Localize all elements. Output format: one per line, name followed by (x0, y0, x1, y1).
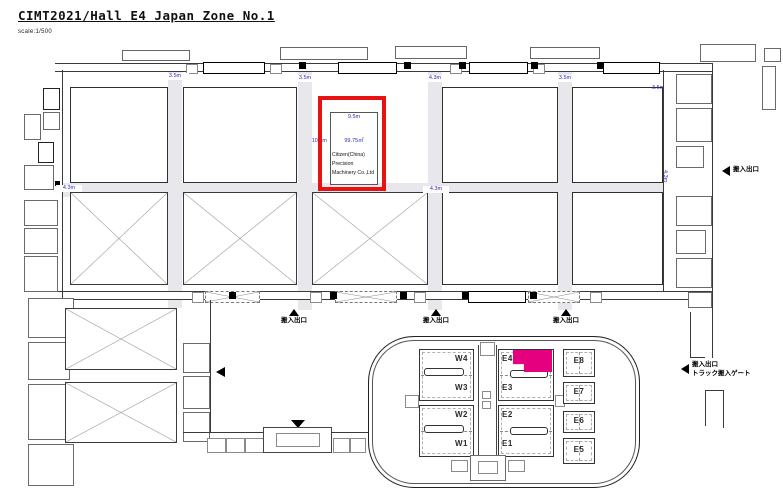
pillar (597, 62, 604, 69)
boundary-wall (705, 390, 706, 426)
facility-room (43, 88, 60, 110)
door-frame (270, 64, 282, 74)
facility-room (24, 200, 58, 226)
counter-cell (245, 438, 264, 453)
booth (442, 192, 558, 285)
hall-label-e2: E2 (502, 410, 513, 419)
highlight-box (318, 96, 386, 191)
pillar (404, 62, 411, 69)
gate-door (338, 62, 397, 74)
entrance-side-structure (508, 460, 525, 472)
facility-room (676, 258, 712, 288)
wall-right-outer (712, 63, 713, 358)
boundary-wall (690, 357, 705, 358)
gate-door (203, 62, 265, 74)
truck-gate-label-line1: 搬入出口 (692, 361, 718, 369)
floor-plan-page: CIMT2021/Hall E4 Japan Zone No.1 scale:1… (0, 0, 783, 495)
boundary-wall (705, 390, 723, 391)
canopy (122, 50, 190, 61)
facility-room (43, 112, 60, 130)
page-title: CIMT2021/Hall E4 Japan Zone No.1 (18, 8, 275, 23)
corridor-structure (482, 391, 491, 399)
boundary-wall (723, 390, 724, 428)
facility-room (183, 412, 210, 442)
pillar (330, 292, 337, 299)
facility-room (676, 196, 712, 226)
gate-label: 搬入出口 (423, 317, 449, 325)
arrow-left-icon (722, 166, 730, 176)
arrow-up-icon (561, 309, 571, 316)
facility-room (762, 66, 776, 110)
facility-room (676, 108, 712, 142)
pillar (530, 292, 537, 299)
gate-door (603, 62, 660, 74)
counter-cell (333, 438, 350, 453)
canopy (395, 46, 467, 59)
dimension-label: 3.5m (652, 85, 664, 92)
door-frame (310, 292, 322, 303)
dimension-label: 4.3m (661, 170, 668, 182)
gate-label: 搬入出口 (733, 166, 759, 174)
service-core (424, 425, 464, 433)
wall (210, 300, 211, 433)
pillar (462, 292, 469, 299)
corridor-wall (496, 345, 497, 463)
corridor-wall (478, 345, 479, 463)
facility-room (28, 444, 74, 486)
service-core (510, 427, 548, 435)
site-overview-map: W4 W3 W2 W1 E4 E3 E2 E1 E8 E7 E6 E5 (368, 336, 640, 488)
west-entrance-stub (405, 395, 419, 408)
hall-label-w3: W3 (455, 383, 468, 392)
hatch-door (335, 291, 397, 303)
arrow-left-icon (216, 367, 225, 377)
gate-label: 搬入出口 (281, 317, 307, 325)
dimension-label: 4.3m (56, 185, 82, 192)
crossed-area (65, 308, 177, 370)
dimension-label: 3.5m (551, 75, 579, 82)
door-frame (192, 292, 204, 303)
hall-label-w2: W2 (455, 410, 468, 419)
dimension-label: 4.3m (423, 186, 449, 193)
hall-label-e3: E3 (502, 383, 513, 392)
hall-label-w4: W4 (455, 354, 468, 363)
hall-label-e1: E1 (502, 439, 513, 448)
crossed-booth (70, 192, 168, 285)
crossed-area (65, 382, 177, 443)
counter-cell (207, 438, 226, 453)
hall-label-e4: E4 (502, 354, 513, 363)
entrance-inner (276, 433, 320, 447)
hall-label-e5: E5 (563, 445, 595, 454)
truck-gate-label-line2: トラック搬入ゲート (692, 370, 751, 378)
arrow-up-icon (289, 309, 299, 316)
pillar (531, 62, 538, 69)
canopy (280, 47, 368, 60)
hall-label-w1: W1 (455, 439, 468, 448)
facility-room (688, 292, 712, 308)
facility-room (676, 146, 704, 168)
facility-room (183, 376, 210, 409)
gate-label: 搬入出口 (553, 317, 579, 325)
dimension-label: 4.3m (421, 75, 449, 82)
service-core (424, 368, 464, 376)
counter-cell (350, 438, 366, 453)
booth (442, 87, 558, 183)
pillar (229, 292, 236, 299)
arrow-up-icon (431, 309, 441, 316)
facility-room (24, 228, 58, 254)
hall-label-e7: E7 (563, 387, 595, 396)
facility-room (24, 114, 41, 140)
roof-structure (764, 48, 781, 62)
dimension-label: 3.5m (291, 75, 319, 82)
crossed-booth (183, 192, 297, 285)
pillar (299, 62, 306, 69)
hall-label-e6: E6 (563, 416, 595, 425)
booth (572, 87, 663, 183)
scale-note: scale:1/500 (18, 29, 52, 35)
facility-room (24, 165, 54, 190)
facility-room (676, 230, 706, 254)
crossed-booth (312, 192, 428, 285)
roof-structure (700, 44, 756, 62)
facility-room (28, 384, 68, 440)
booth (183, 87, 297, 183)
corridor-structure (482, 401, 491, 409)
pillar (459, 62, 466, 69)
facility-room (38, 142, 54, 163)
door-frame (590, 292, 602, 303)
counter-cell (226, 438, 245, 453)
facility-room (676, 74, 712, 104)
hall-label-e8: E8 (563, 356, 595, 365)
booth (572, 192, 663, 285)
arrow-left-icon (681, 364, 689, 374)
pillar (400, 292, 407, 299)
dimension-label: 3.5m (161, 73, 189, 80)
gate-door (469, 62, 528, 74)
south-entrance-inner (478, 461, 498, 474)
facility-room (28, 342, 70, 380)
door-frame (414, 292, 426, 303)
booth (70, 87, 168, 183)
entrance-side-structure (451, 460, 468, 472)
gate-door (468, 291, 526, 303)
canopy (530, 47, 600, 59)
corridor-structure (480, 342, 495, 356)
boundary-wall (690, 312, 691, 358)
facility-room (183, 343, 210, 373)
facility-room (24, 256, 58, 292)
